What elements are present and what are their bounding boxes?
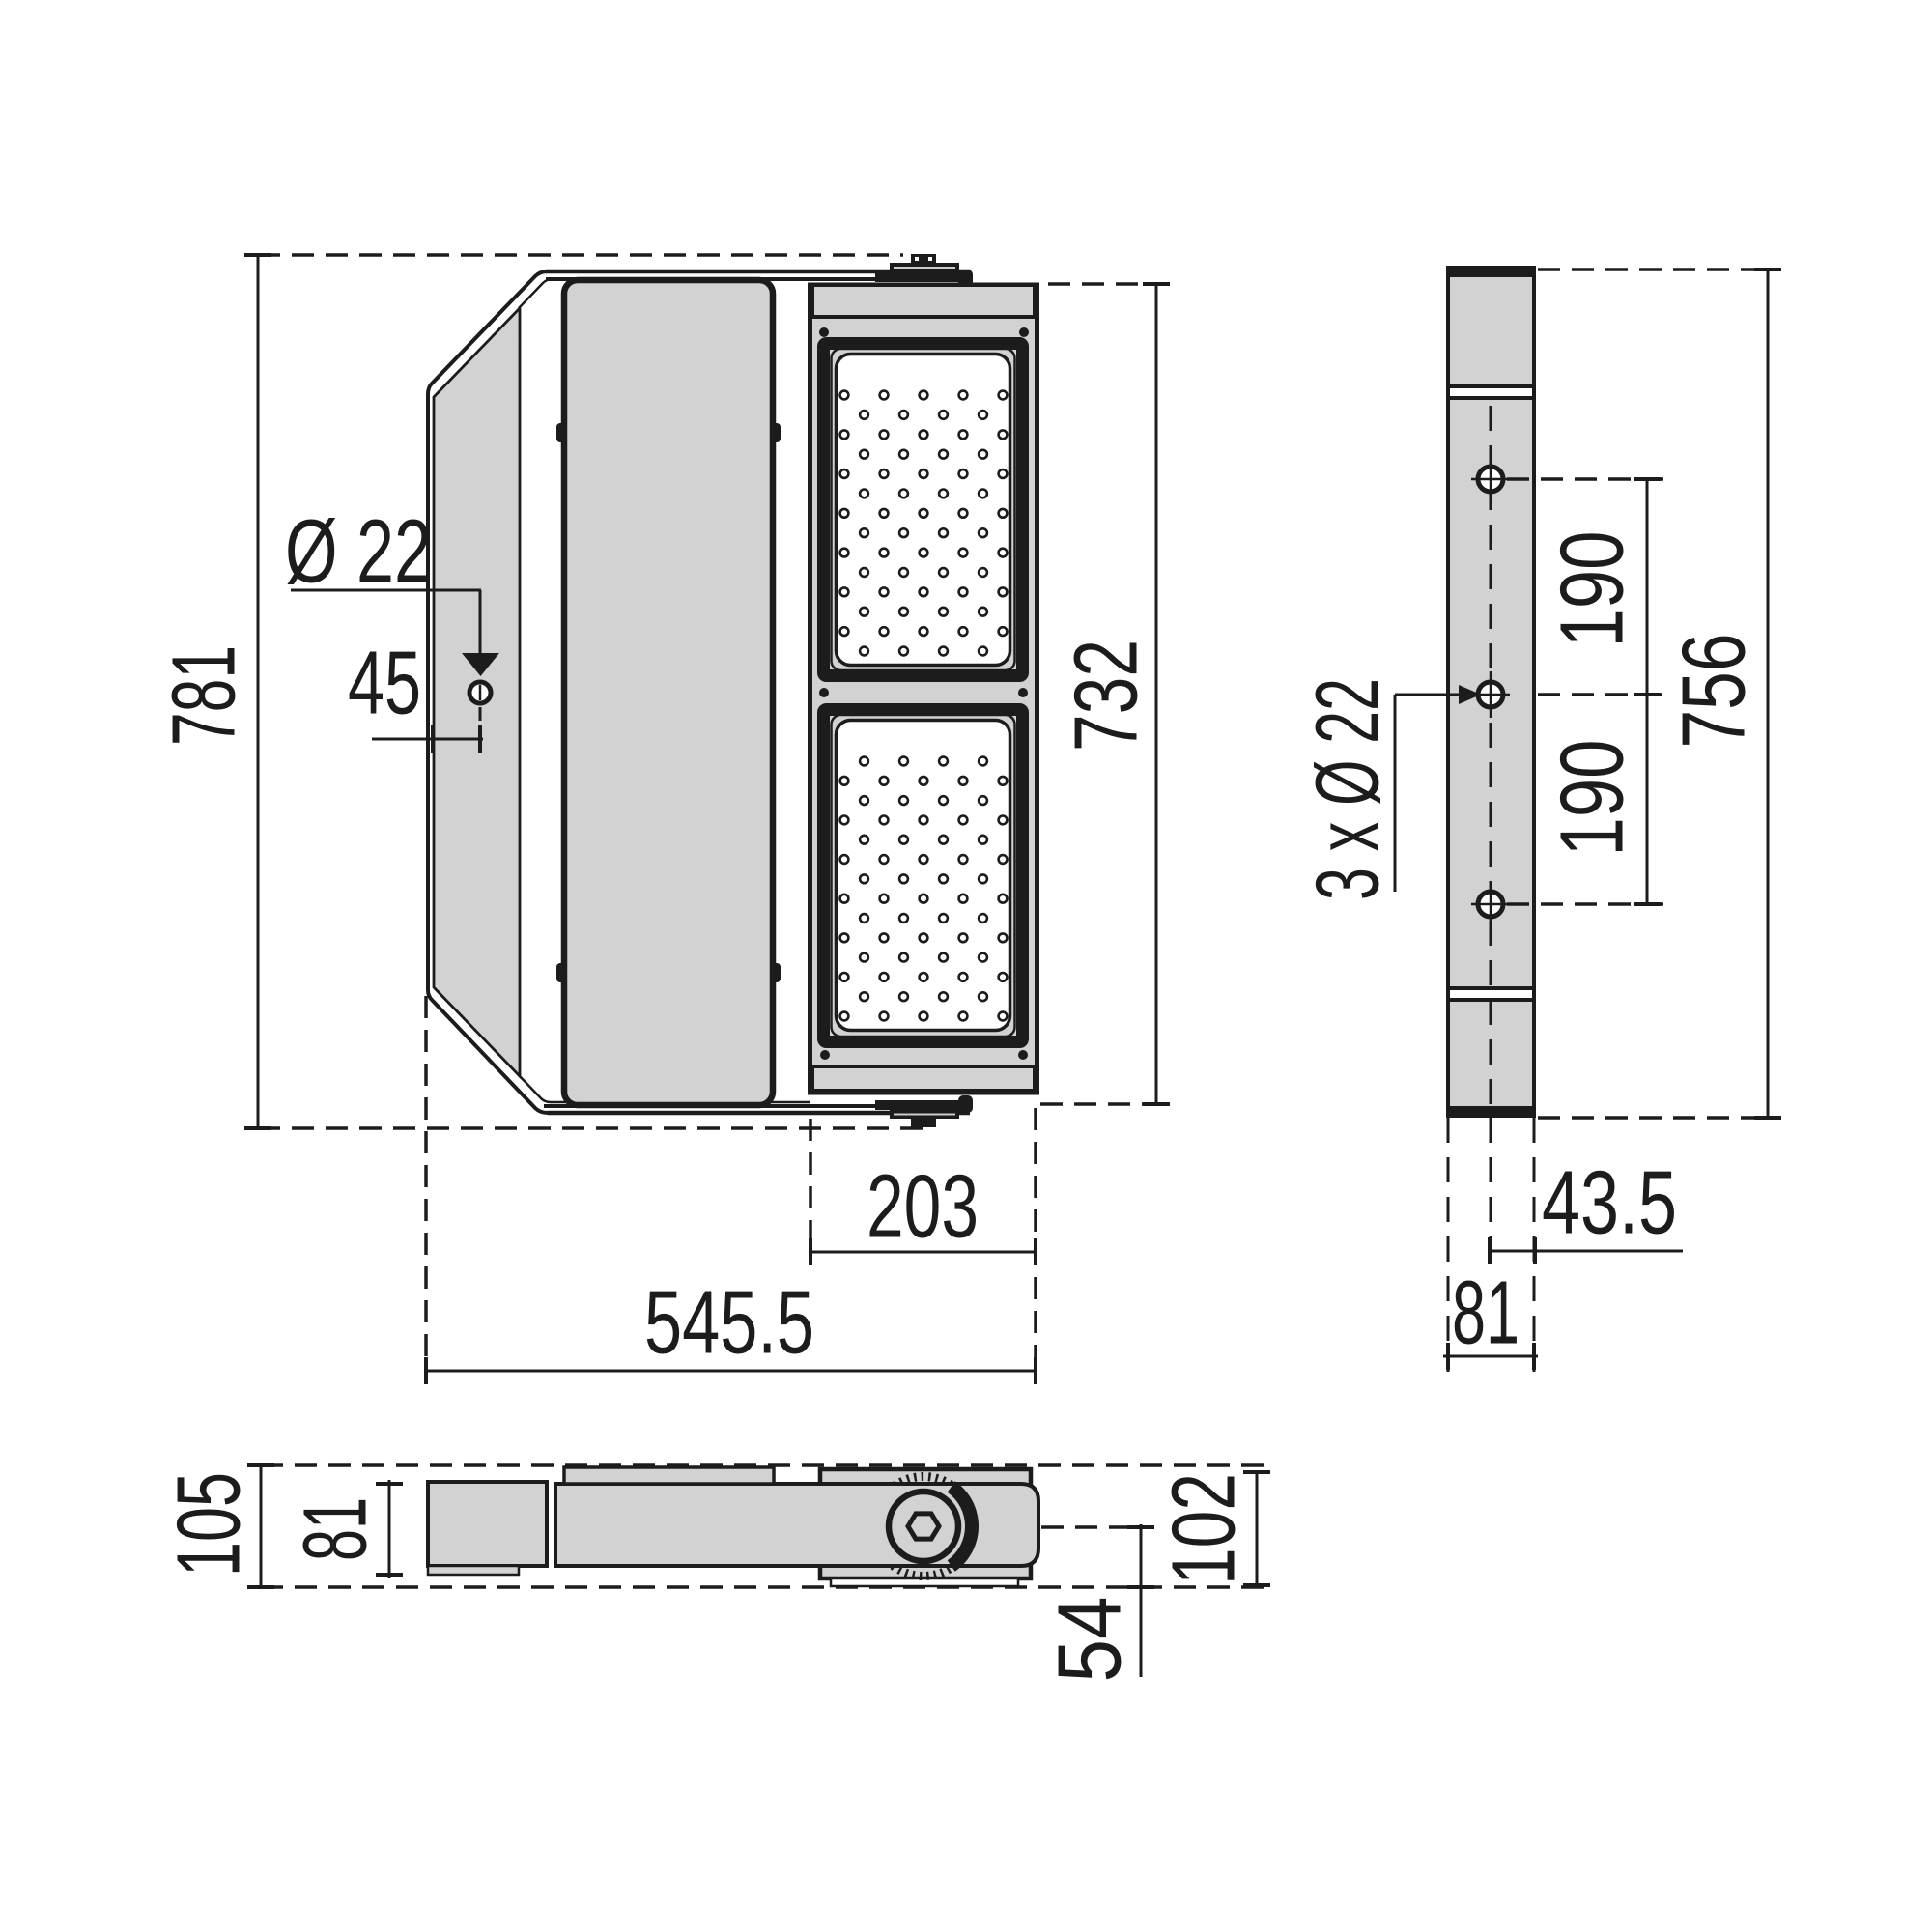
svg-text:43.5: 43.5 — [1542, 1151, 1677, 1252]
svg-text:190: 190 — [1541, 740, 1641, 857]
svg-text:190: 190 — [1541, 531, 1641, 648]
svg-text:732: 732 — [1055, 639, 1155, 752]
svg-text:81: 81 — [1452, 1262, 1520, 1362]
svg-text:Ø 22: Ø 22 — [285, 500, 432, 601]
svg-text:3 x Ø 22: 3 x Ø 22 — [1296, 678, 1397, 900]
svg-text:545.5: 545.5 — [644, 1271, 814, 1372]
svg-text:105: 105 — [157, 1472, 258, 1577]
svg-text:81: 81 — [284, 1497, 384, 1561]
svg-text:54: 54 — [1038, 1597, 1139, 1683]
svg-text:102: 102 — [1152, 1473, 1253, 1585]
svg-text:781: 781 — [153, 645, 253, 746]
svg-text:45: 45 — [348, 632, 421, 732]
svg-text:203: 203 — [867, 1155, 979, 1256]
svg-text:756: 756 — [1662, 634, 1763, 749]
